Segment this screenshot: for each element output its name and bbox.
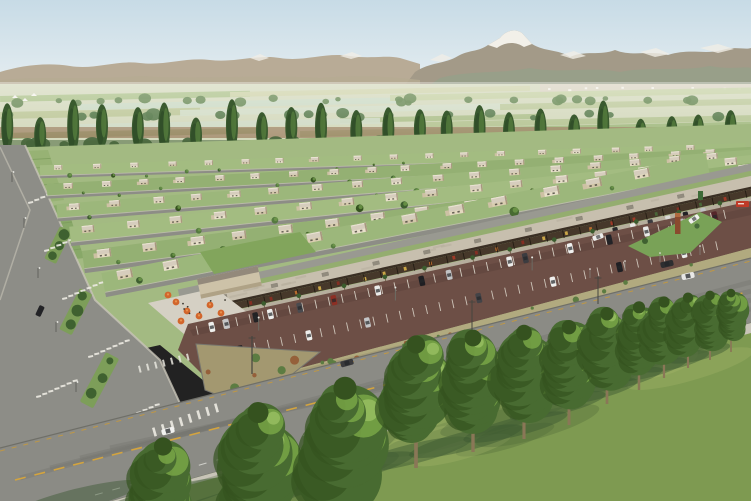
house-window <box>181 181 182 182</box>
house-shade-side <box>212 160 213 165</box>
house-window <box>314 189 316 190</box>
house-window <box>439 179 441 180</box>
patio-table <box>189 312 191 314</box>
scene-canvas <box>0 0 751 501</box>
house-window <box>517 163 518 164</box>
tree-top <box>633 301 645 313</box>
shrub <box>252 373 256 377</box>
entry-tree <box>694 223 699 228</box>
house-window <box>172 221 174 222</box>
house-window <box>75 208 77 209</box>
house-window <box>315 160 316 161</box>
shrub <box>602 289 606 293</box>
house-window <box>71 208 73 209</box>
house-window <box>563 180 565 181</box>
shrub <box>531 306 534 309</box>
house-window <box>542 153 543 154</box>
shrub <box>689 263 692 266</box>
house-window <box>132 166 133 167</box>
house-window <box>240 236 242 238</box>
house-window <box>392 198 394 199</box>
house-window <box>221 216 223 217</box>
house-window <box>312 160 313 161</box>
streetlight-head <box>699 245 701 247</box>
house-window <box>388 199 390 200</box>
streetlight-head <box>77 381 79 383</box>
house-window <box>348 203 350 204</box>
house-window <box>111 205 113 206</box>
monument-top <box>675 213 681 217</box>
house-window <box>391 158 392 159</box>
house-window <box>150 248 152 250</box>
house-window <box>649 150 650 151</box>
house-window <box>671 161 673 162</box>
aerial-community-rendering <box>0 0 751 501</box>
tree-top <box>248 402 269 423</box>
house-window <box>274 192 276 193</box>
house-shade-side <box>361 156 362 161</box>
streetlight-head <box>624 260 626 262</box>
house-window <box>216 217 218 218</box>
house-window <box>197 198 199 199</box>
house-window <box>134 225 136 226</box>
house-window <box>355 159 356 160</box>
house-window <box>235 237 237 239</box>
house-shade-side <box>619 147 620 152</box>
house-window <box>631 157 632 158</box>
house-window <box>393 183 395 184</box>
house-window <box>402 169 403 170</box>
house-window <box>520 163 521 164</box>
streetlight-head <box>589 268 591 270</box>
house-window <box>194 242 196 244</box>
streetlight-head <box>25 217 27 219</box>
house-window <box>100 255 102 257</box>
house-shade-side <box>61 165 62 170</box>
house-shade-side <box>283 158 284 163</box>
house-window <box>302 208 304 209</box>
house-window <box>599 159 600 160</box>
house-window <box>318 188 320 189</box>
house-window <box>56 168 57 169</box>
house-window <box>731 163 733 164</box>
house-window <box>331 173 332 174</box>
house-window <box>333 224 335 226</box>
tree-top <box>600 307 613 320</box>
patio-table <box>224 299 226 301</box>
house-window <box>156 201 158 202</box>
house-window <box>177 181 178 182</box>
house-window <box>306 207 308 208</box>
house-wing <box>552 160 555 163</box>
entry-tree <box>642 238 648 244</box>
house-shade-side <box>580 149 581 154</box>
house-window <box>553 170 555 171</box>
house-window <box>511 173 513 174</box>
poplar-light <box>72 105 77 140</box>
sign-text-bar <box>738 203 744 204</box>
house-shade-side <box>318 157 319 162</box>
house-window <box>286 230 288 232</box>
house-window <box>176 221 178 222</box>
house-window <box>220 179 221 180</box>
streetlight-head <box>13 171 15 173</box>
house-window <box>397 182 399 183</box>
light-head <box>258 317 260 319</box>
house-window <box>209 164 210 165</box>
poplar-light <box>39 121 44 146</box>
house-window <box>727 163 729 164</box>
shrub <box>251 353 260 362</box>
umbrella-top <box>186 309 188 311</box>
house-window <box>517 185 519 186</box>
poplar-light <box>291 111 296 138</box>
house-window <box>270 192 272 193</box>
house-window <box>688 149 689 150</box>
house-window <box>236 195 238 196</box>
umbrella-top <box>167 293 169 295</box>
crosswalk-bar <box>170 358 174 365</box>
house-window <box>243 163 244 164</box>
house-window <box>577 152 578 153</box>
house-shade-side <box>504 151 505 156</box>
house-window <box>328 225 330 227</box>
shrub <box>320 361 324 365</box>
house-window <box>512 186 514 187</box>
tree-top <box>154 437 172 455</box>
umbrella-top <box>220 311 222 313</box>
house-window <box>280 161 281 162</box>
tree-top <box>333 377 356 400</box>
house-shade-side <box>545 150 546 155</box>
house-window <box>616 151 617 152</box>
house-window <box>105 254 107 256</box>
tree-top <box>562 320 576 334</box>
house-window <box>475 176 477 177</box>
house-window <box>394 158 395 159</box>
house-shade-side <box>100 164 101 169</box>
green-banner-sign <box>698 191 703 200</box>
house-window <box>427 157 428 158</box>
house-wing <box>327 172 330 175</box>
house-window <box>596 167 598 168</box>
house-wing <box>137 182 140 185</box>
house-window <box>84 231 86 232</box>
streetlight-head <box>39 267 41 269</box>
house-shade-side <box>694 145 695 150</box>
house-window <box>104 185 105 186</box>
house-shade-side <box>249 159 250 164</box>
tree-top <box>727 289 736 298</box>
house-window <box>498 154 499 155</box>
shrub <box>623 280 628 285</box>
house-window <box>281 231 283 233</box>
house-window <box>444 167 445 168</box>
house-window <box>646 150 647 151</box>
house-window <box>257 212 259 213</box>
house-window <box>709 158 711 159</box>
house-window <box>206 164 207 165</box>
house-window <box>448 167 449 168</box>
house-window <box>252 177 253 178</box>
house-window <box>592 167 594 168</box>
house-window <box>170 165 171 166</box>
house-window <box>596 159 597 160</box>
house-window <box>173 165 174 166</box>
house-window <box>294 175 295 176</box>
shrub <box>278 366 286 374</box>
house-window <box>560 161 561 162</box>
house-window <box>358 159 359 160</box>
house-window <box>68 187 69 188</box>
house-window <box>713 157 715 158</box>
house-window <box>373 171 374 172</box>
house-window <box>369 171 370 172</box>
patio-table <box>183 308 185 310</box>
house-window <box>344 203 346 204</box>
house-window <box>472 190 474 191</box>
house-window <box>358 185 360 186</box>
foliage-glint <box>427 343 439 355</box>
house-window <box>634 157 635 158</box>
house-window <box>482 165 483 166</box>
patio-table <box>187 306 189 308</box>
house-window <box>97 167 98 168</box>
umbrella-top <box>175 300 177 302</box>
patio-table <box>210 300 212 302</box>
umbrella-top <box>209 303 211 305</box>
poplar-light <box>163 108 168 141</box>
light-head <box>531 256 533 258</box>
tree-top <box>658 296 669 307</box>
patio-table <box>182 303 184 305</box>
shrub <box>206 369 211 374</box>
house-shade-side <box>652 146 653 151</box>
house-window <box>291 175 292 176</box>
house-window <box>632 164 634 165</box>
house-window <box>193 198 195 199</box>
house-window <box>232 195 234 196</box>
poplar-light <box>231 105 236 140</box>
house-window <box>432 194 434 195</box>
tree-top <box>516 325 532 341</box>
house-shade-side <box>433 153 434 158</box>
house-window <box>65 187 66 188</box>
house-window <box>435 179 437 180</box>
house-window <box>479 165 480 166</box>
poplar-light <box>137 112 142 140</box>
shrub <box>290 356 299 365</box>
house-window <box>430 157 431 158</box>
patio-table <box>199 311 201 313</box>
house-window <box>574 152 575 153</box>
house-window <box>556 161 557 162</box>
house-window <box>501 154 502 155</box>
house-window <box>636 163 638 164</box>
house-window <box>115 204 117 205</box>
house-window <box>145 249 147 251</box>
house-window <box>354 186 356 187</box>
house-window <box>335 173 336 174</box>
house-window <box>246 162 247 163</box>
house-window <box>198 242 200 244</box>
tree-top <box>683 293 693 303</box>
foliage-glint <box>267 412 280 425</box>
house-wing <box>571 151 573 154</box>
house-wing <box>309 159 311 162</box>
house-window <box>540 153 541 154</box>
house-wing <box>365 170 368 173</box>
house-window <box>406 169 407 170</box>
house-window <box>613 151 614 152</box>
house-shade-side <box>397 154 398 159</box>
house-window <box>464 156 465 157</box>
house-window <box>89 230 91 231</box>
streetlight-head <box>659 252 661 254</box>
house-wing <box>495 153 497 156</box>
house-window <box>130 226 132 227</box>
house-window <box>558 181 560 182</box>
house-shade-side <box>176 161 177 166</box>
house-window <box>556 170 558 171</box>
streetlight-head <box>57 321 59 323</box>
house-window <box>217 179 218 180</box>
house-window <box>135 166 136 167</box>
poplar-light <box>320 108 325 140</box>
house-window <box>471 176 473 177</box>
poplar-light <box>261 116 266 141</box>
house-wing <box>173 180 176 183</box>
house-window <box>95 167 96 168</box>
house-window <box>255 177 256 178</box>
house-window <box>477 189 479 190</box>
house-shade-side <box>467 152 468 157</box>
umbrella-top <box>180 319 182 321</box>
house-window <box>261 212 263 213</box>
house-window <box>515 173 517 174</box>
house-window <box>141 183 142 184</box>
house-wing <box>440 166 443 169</box>
house-window <box>144 183 145 184</box>
house-window <box>428 194 430 195</box>
poplar-light <box>101 109 106 138</box>
poplar-light <box>195 121 200 145</box>
house-window <box>462 156 463 157</box>
house-window <box>277 161 278 162</box>
light-head <box>394 286 396 288</box>
house-shade-side <box>138 163 139 168</box>
house-window <box>691 148 692 149</box>
tree-top <box>465 330 482 347</box>
house-window <box>107 185 108 186</box>
tree-top <box>705 291 715 301</box>
poplar-light <box>6 108 11 139</box>
umbrella-top <box>198 314 200 316</box>
house-window <box>159 201 161 202</box>
tree-top <box>407 335 425 353</box>
house-window <box>58 168 59 169</box>
